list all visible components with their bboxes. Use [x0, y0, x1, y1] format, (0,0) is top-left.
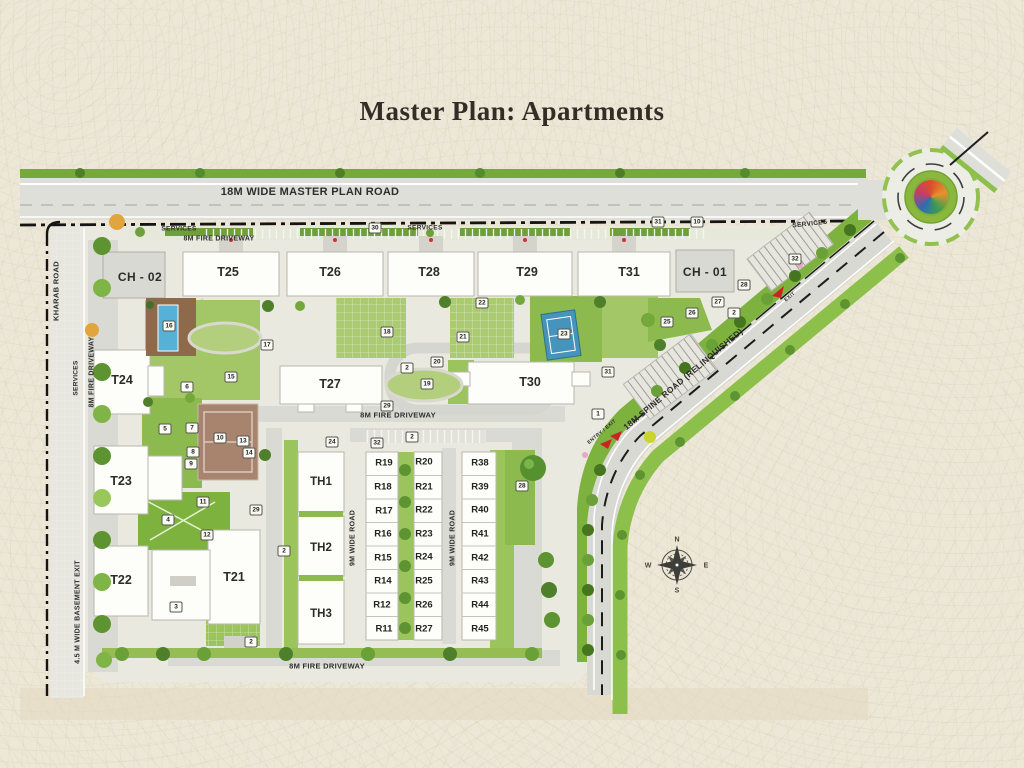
site-plan: CH - 02T25T26T28T29T31CH - 01T24T27T30T2… — [0, 0, 1024, 768]
master-plan-page: Master Plan: Apartments — [0, 0, 1024, 768]
compass-icon — [657, 545, 697, 585]
roundabout-swirl-icon — [914, 180, 948, 214]
site-plan-graphic — [0, 0, 1024, 768]
